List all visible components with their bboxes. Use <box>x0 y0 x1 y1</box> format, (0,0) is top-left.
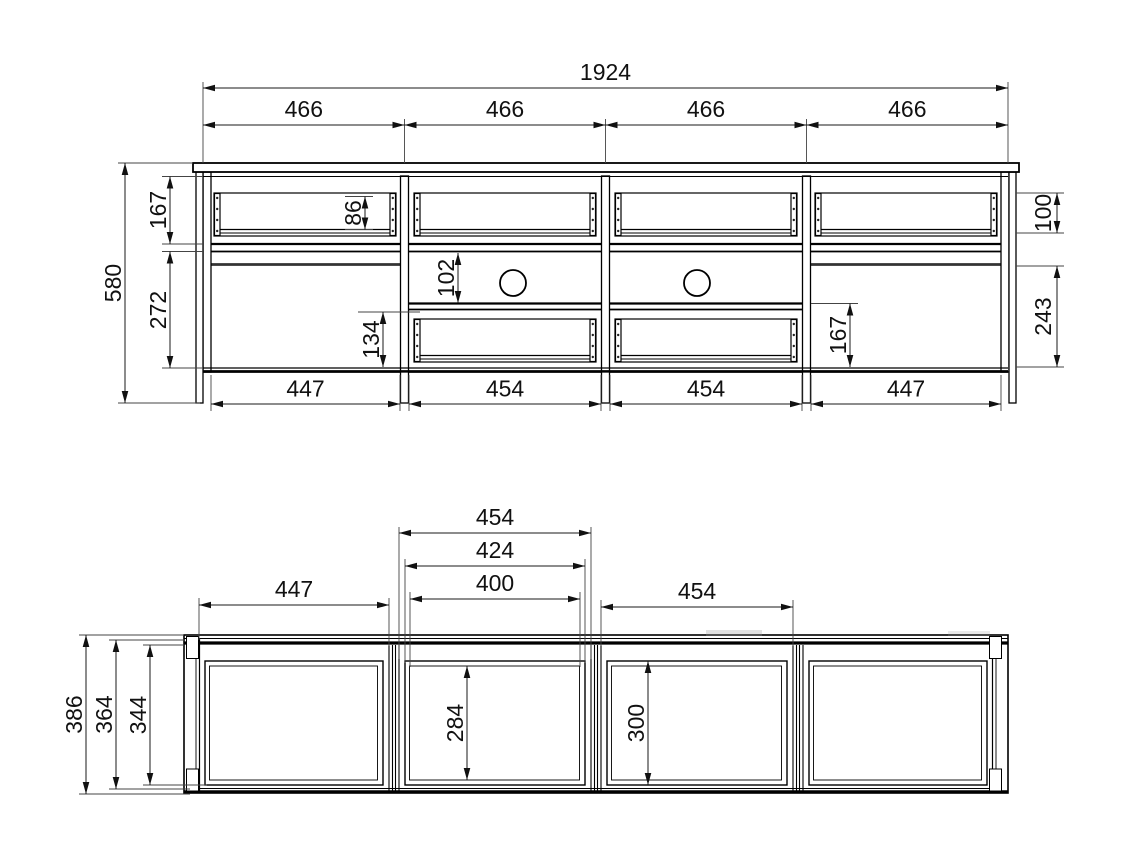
fv-dim-upper-opening: 167 <box>145 191 171 229</box>
print-smudge <box>706 630 762 636</box>
fv-dim-total-width: 1924 <box>580 59 631 85</box>
drawer-panel <box>414 193 596 236</box>
tv-dim-third-clear-depth: 300 <box>623 704 649 742</box>
tv-corner-leg <box>990 769 1002 791</box>
tv-dim-second-compartment: 454 <box>476 504 515 530</box>
fv-dim-height: 580 <box>100 264 126 302</box>
fv-dim-right-drawer: 100 <box>1030 194 1056 232</box>
fv-right-leg <box>1009 172 1016 403</box>
fv-dim-bottom-width-1: 447 <box>286 376 324 402</box>
cable-hole-icon <box>684 270 710 296</box>
furniture-dimension-drawing: 1924 466 466 466 466 580 167 272 86 102 … <box>0 0 1123 843</box>
print-smudge <box>948 631 990 636</box>
cable-hole-icon <box>500 270 526 296</box>
fv-partition <box>602 176 610 372</box>
fv-dim-bottom-width-4: 447 <box>887 376 925 402</box>
fv-dim-section-width-2: 466 <box>486 96 524 122</box>
tv-corner-leg <box>187 637 199 659</box>
fv-dim-bottom-width-2: 454 <box>486 376 525 402</box>
fv-middle-leg <box>602 372 610 403</box>
fv-dim-lower-drawer: 134 <box>358 320 384 359</box>
fv-dim-lower-opening: 272 <box>145 291 171 329</box>
fv-dimension-labels: 1924 466 466 466 466 580 167 272 86 102 … <box>100 59 1056 402</box>
drawer-panel <box>615 319 797 362</box>
tv-cabinet-body <box>184 630 1008 793</box>
front-view-cabinet <box>193 163 1019 403</box>
tv-dim-third-compartment: 454 <box>678 578 717 604</box>
drawer-panel <box>815 193 997 236</box>
tv-dim-second-door: 424 <box>476 537 515 563</box>
fv-partition <box>803 176 811 372</box>
fv-dim-section-width-3: 466 <box>687 96 725 122</box>
fv-dim-lower-right-opening: 167 <box>825 316 851 354</box>
tv-dim-door-depth: 344 <box>125 696 151 735</box>
fv-left-side-panel <box>203 172 211 372</box>
fv-middle-leg <box>803 372 811 403</box>
fv-dim-niche: 102 <box>433 259 459 297</box>
tv-outline <box>184 635 1008 793</box>
fv-partition <box>401 176 409 372</box>
tv-corner-leg <box>990 637 1002 659</box>
fv-dim-section-width-1: 466 <box>285 96 323 122</box>
fv-dim-section-width-4: 466 <box>888 96 926 122</box>
tv-dim-second-clear: 400 <box>476 570 514 596</box>
tv-corner-leg <box>187 769 199 791</box>
fv-top-panel <box>193 163 1019 172</box>
fv-dim-drawer-back: 86 <box>340 200 366 226</box>
drawer-panel <box>615 193 797 236</box>
fv-right-side-panel <box>1001 172 1009 372</box>
fv-middle-leg <box>401 372 409 403</box>
tv-dim-overall-depth: 386 <box>61 695 87 733</box>
tv-dim-second-clear-depth: 284 <box>442 704 468 743</box>
tv-dim-left-compartment: 447 <box>275 576 313 602</box>
front-view: 1924 466 466 466 466 580 167 272 86 102 … <box>100 59 1064 411</box>
tv-dim-inner-depth: 364 <box>91 695 117 734</box>
top-view: 454 424 400 447 454 386 364 344 284 300 <box>61 504 1008 794</box>
drawer-panel <box>414 319 596 362</box>
fv-dimension-lines <box>125 88 1057 404</box>
technical-drawing-page: 1924 466 466 466 466 580 167 272 86 102 … <box>0 0 1123 843</box>
fv-dim-bottom-width-3: 454 <box>687 376 726 402</box>
fv-dim-right-opening: 243 <box>1030 297 1056 335</box>
